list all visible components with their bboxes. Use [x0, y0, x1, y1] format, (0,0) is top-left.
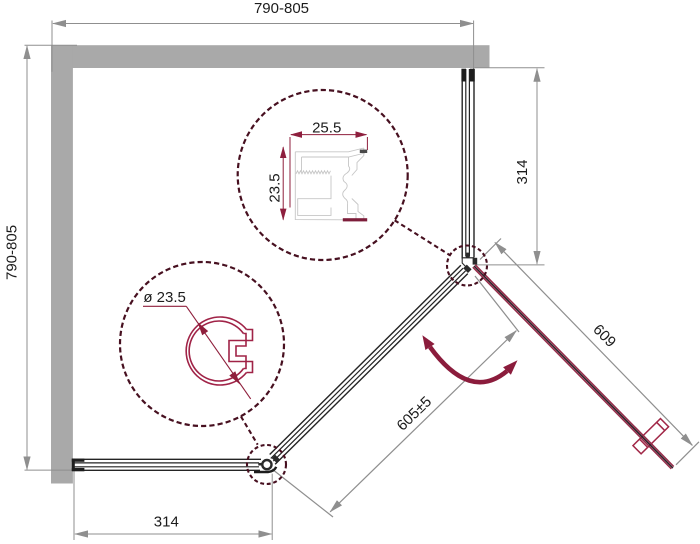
svg-text:790-805: 790-805 [254, 0, 309, 17]
svg-text:25.5: 25.5 [312, 120, 341, 137]
svg-text:609: 609 [589, 321, 619, 351]
svg-text:314: 314 [514, 159, 531, 184]
svg-text:605±5: 605±5 [394, 393, 436, 434]
svg-text:790-805: 790-805 [3, 225, 20, 280]
svg-text:ø 23.5: ø 23.5 [143, 289, 186, 306]
svg-text:23.5: 23.5 [267, 173, 284, 202]
svg-text:314: 314 [154, 514, 179, 531]
